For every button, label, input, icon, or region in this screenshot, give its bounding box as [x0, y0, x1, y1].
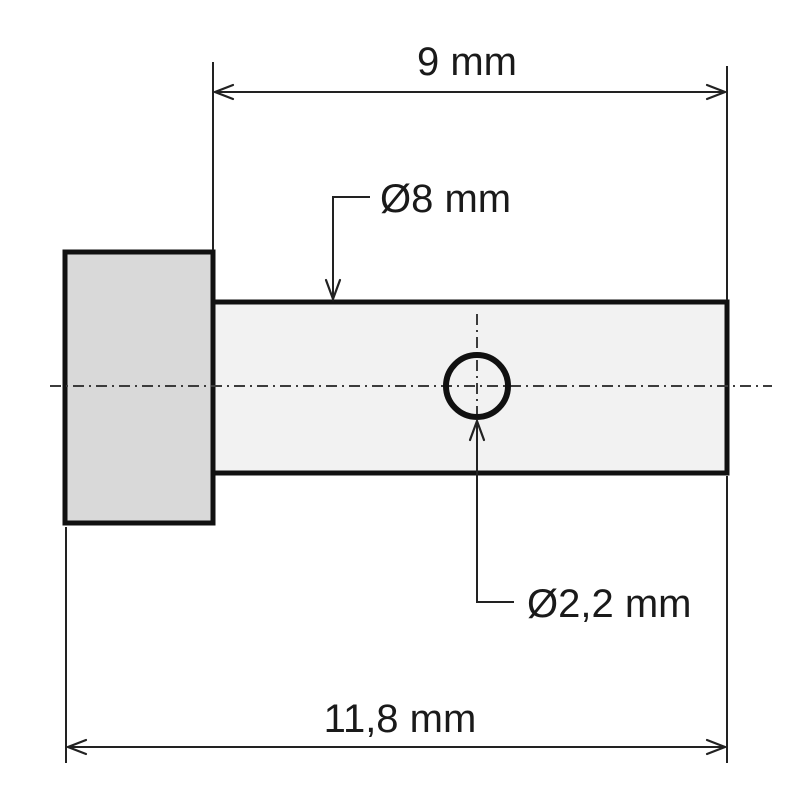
dimension-label-hole-diameter: Ø2,2 mm [527, 582, 691, 626]
dimension-label-overall-length: 11,8 mm [324, 697, 477, 741]
pin-shaft-body [213, 302, 727, 473]
dimension-label-shaft-diameter: Ø8 mm [380, 177, 511, 221]
drawing-svg: 9 mm Ø8 mm Ø2,2 mm 11,8 mm [0, 0, 800, 800]
dimension-label-top-width: 9 mm [417, 40, 517, 84]
technical-drawing: 9 mm Ø8 mm Ø2,2 mm 11,8 mm [0, 0, 800, 800]
pin-head-body [65, 252, 213, 523]
